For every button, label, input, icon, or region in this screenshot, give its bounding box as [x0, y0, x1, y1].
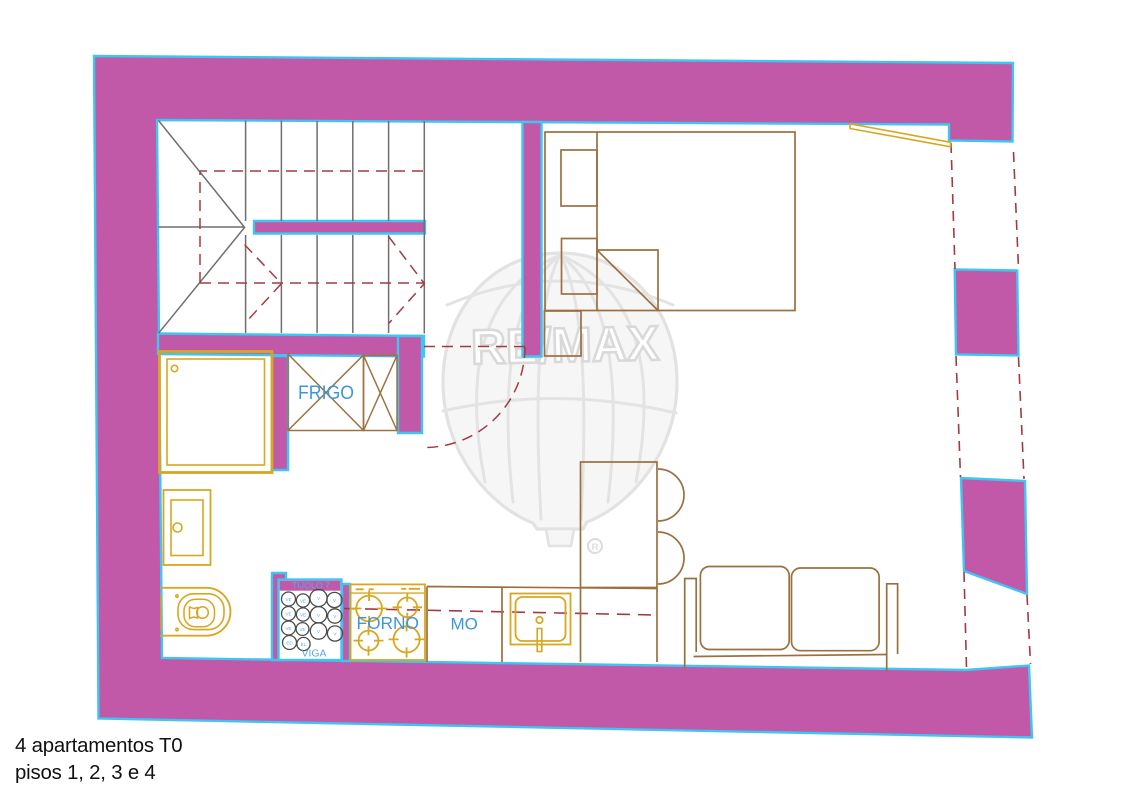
svg-text:FRIGO: FRIGO	[298, 383, 354, 404]
svg-text:VE: VE	[299, 627, 305, 632]
svg-text:ED: ED	[286, 641, 293, 646]
svg-text:VIGA: VIGA	[302, 649, 327, 660]
svg-text:EL: EL	[301, 642, 307, 647]
svg-text:V: V	[333, 598, 336, 603]
svg-text:4 apartamentos T0: 4 apartamentos T0	[15, 735, 182, 757]
svg-text:R: R	[592, 542, 599, 553]
svg-text:VE: VE	[300, 613, 306, 618]
svg-text:V: V	[333, 632, 336, 637]
svg-text:V: V	[317, 629, 320, 634]
svg-text:MO: MO	[451, 615, 478, 634]
svg-text:V: V	[317, 613, 320, 618]
svg-text:VE: VE	[285, 612, 291, 617]
svg-text:TIJOLO 7: TIJOLO 7	[292, 581, 330, 591]
svg-text:VE: VE	[285, 626, 291, 631]
svg-text:pisos 1, 2, 3 e 4: pisos 1, 2, 3 e 4	[15, 762, 156, 784]
svg-text:V: V	[317, 596, 320, 601]
svg-text:VE: VE	[300, 599, 306, 604]
svg-text:FORNO: FORNO	[357, 613, 420, 633]
svg-text:V: V	[333, 614, 336, 619]
svg-text:VE: VE	[285, 597, 291, 602]
